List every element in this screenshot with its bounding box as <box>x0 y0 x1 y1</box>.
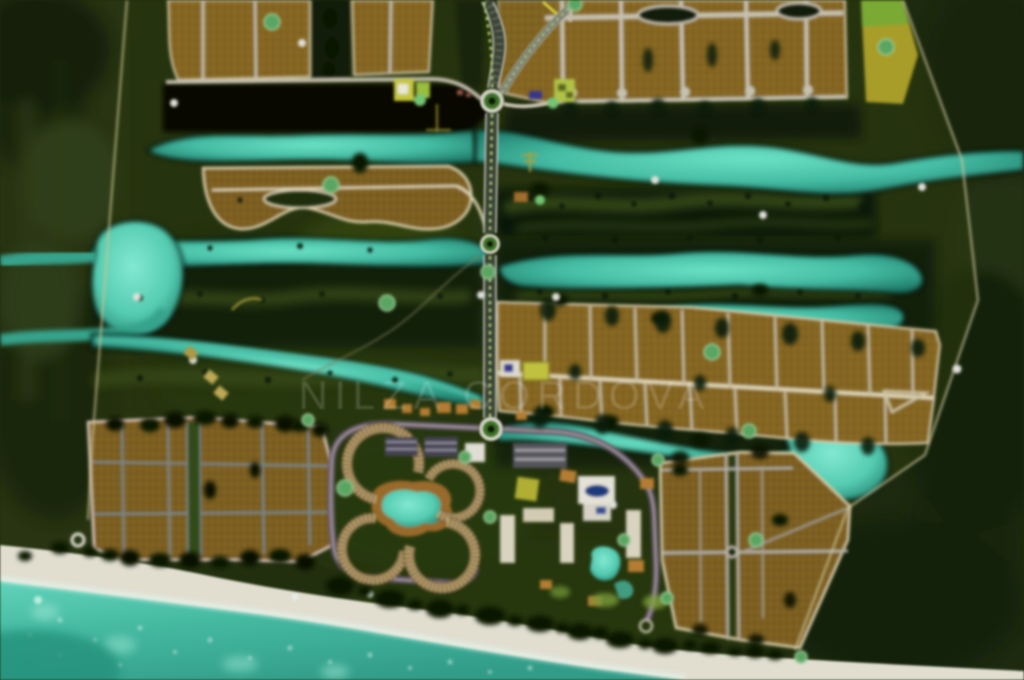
svg-text:NILZA CORDOVA: NILZA CORDOVA <box>299 374 712 418</box>
